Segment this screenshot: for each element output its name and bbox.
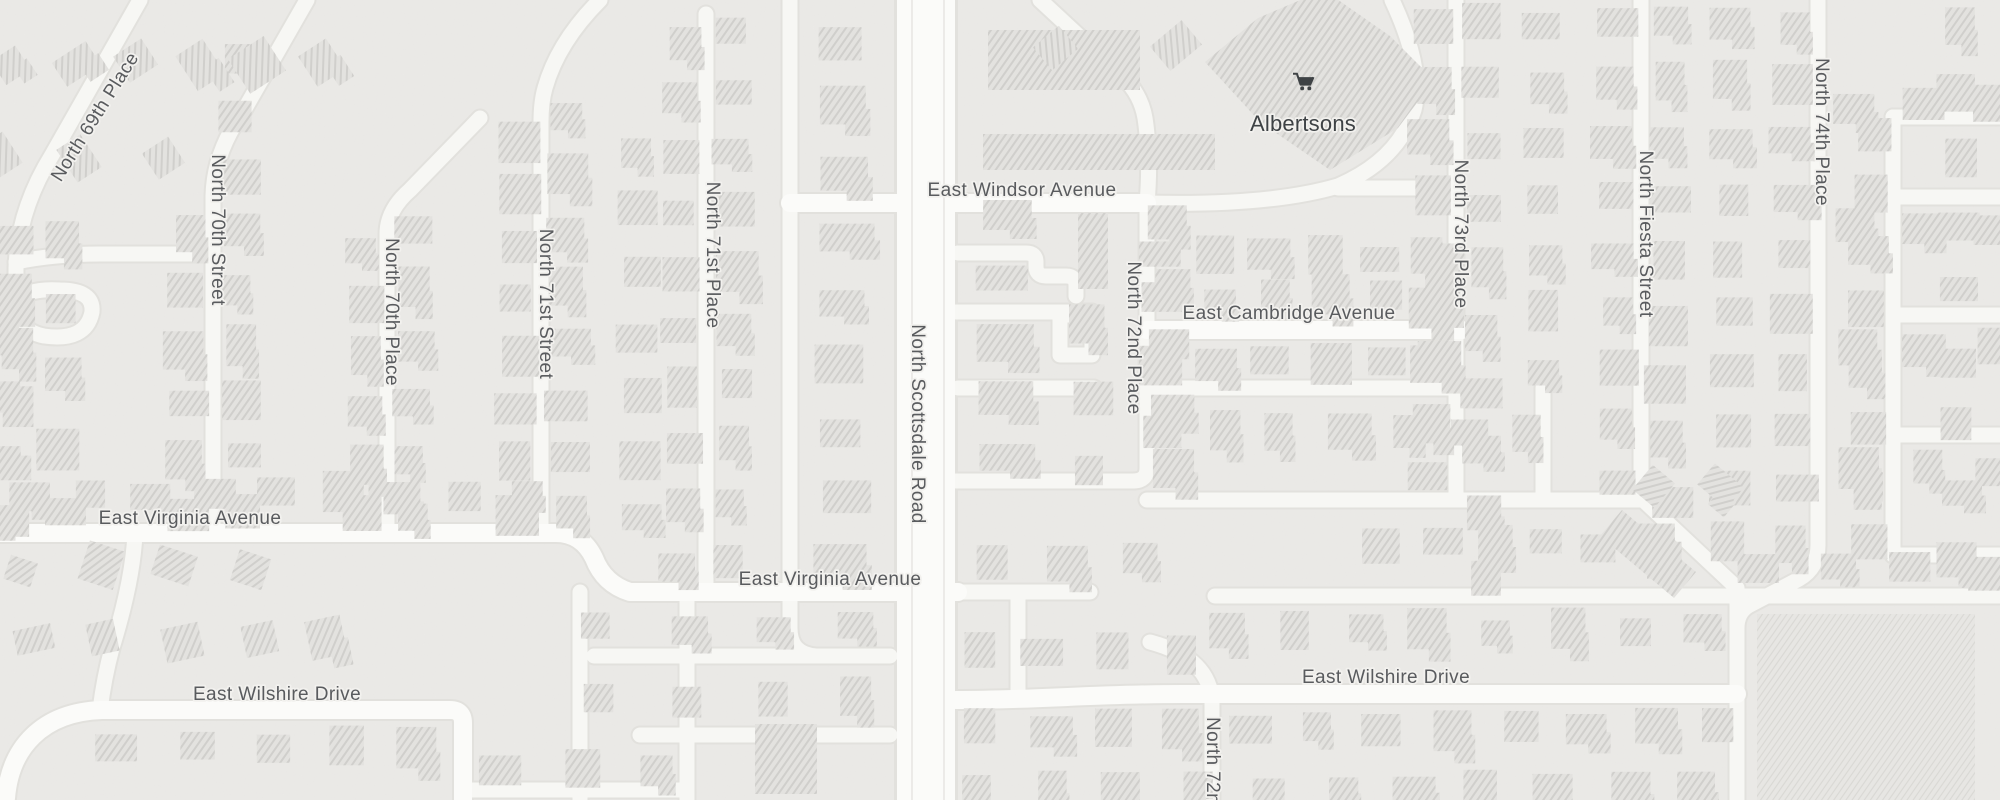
street-label: East Windsor Avenue <box>928 180 1117 201</box>
building-wing <box>1792 548 1809 574</box>
building <box>1581 534 1616 562</box>
building <box>1968 557 2000 591</box>
building <box>815 345 864 384</box>
building <box>758 682 787 717</box>
building <box>0 446 21 474</box>
building-wing <box>1010 460 1041 479</box>
building <box>823 480 871 513</box>
building <box>965 632 996 668</box>
building <box>1280 611 1308 650</box>
building <box>1973 85 2000 122</box>
building-wing <box>1229 634 1249 659</box>
building-wing <box>1549 92 1568 114</box>
building-wing <box>64 243 82 269</box>
building <box>1020 639 1063 666</box>
building-wing <box>570 178 592 206</box>
building <box>565 749 600 788</box>
building <box>983 134 1215 170</box>
building-wing <box>1436 89 1455 115</box>
building <box>660 318 696 343</box>
building <box>1423 528 1463 555</box>
building-wing <box>367 414 386 435</box>
building <box>502 336 539 377</box>
street-label: North 70th Street <box>207 154 228 306</box>
building <box>584 684 614 712</box>
building <box>618 190 658 225</box>
building <box>257 735 290 763</box>
building <box>1776 475 1819 502</box>
street-label: East Cambridge Avenue <box>1183 303 1396 324</box>
building-wing <box>1860 351 1881 376</box>
building-wing <box>847 177 873 201</box>
building <box>169 391 209 416</box>
building-wing <box>739 276 762 305</box>
building-wing <box>1861 472 1883 501</box>
building <box>76 481 105 508</box>
building <box>1940 277 1978 301</box>
building <box>494 393 536 424</box>
building <box>1713 242 1742 278</box>
street-label: East Wilshire Drive <box>1302 667 1470 688</box>
building <box>1855 175 1888 213</box>
building <box>663 140 699 174</box>
building <box>1196 236 1234 274</box>
building <box>1408 462 1448 490</box>
building-wing <box>679 570 699 590</box>
building-wing <box>731 506 747 525</box>
building-wing <box>1617 427 1635 449</box>
building-wing <box>0 331 23 356</box>
building <box>1522 13 1560 39</box>
building <box>581 613 610 639</box>
building <box>1463 770 1496 800</box>
street-label: East Virginia Avenue <box>99 508 282 529</box>
building-wing <box>1613 146 1636 169</box>
building-wing <box>1797 32 1813 55</box>
building <box>1361 714 1400 746</box>
building-wing <box>17 298 35 327</box>
building <box>977 545 1008 580</box>
building <box>1451 420 1488 446</box>
building <box>1738 554 1779 583</box>
building <box>1527 185 1558 213</box>
building-wing <box>1857 229 1878 253</box>
building-wing <box>237 293 253 314</box>
building-wing <box>736 446 752 470</box>
building-wing <box>1668 443 1686 469</box>
building-wing <box>1867 373 1885 400</box>
building <box>329 726 364 766</box>
building <box>551 442 590 472</box>
building-wing <box>845 109 870 136</box>
building-wing <box>418 349 438 370</box>
building-wing <box>32 500 54 520</box>
building-wing <box>1668 146 1687 168</box>
building <box>1460 378 1502 408</box>
street-label: East Virginia Avenue <box>739 569 922 590</box>
building <box>502 231 537 263</box>
building-wing <box>1410 435 1426 458</box>
building-wing <box>1620 314 1637 334</box>
building-wing <box>1008 347 1039 373</box>
building-wing <box>1871 253 1893 273</box>
building <box>1462 3 1500 39</box>
building <box>0 226 33 255</box>
building <box>46 294 76 323</box>
building-wing <box>1961 30 1977 56</box>
building-wing <box>410 463 426 483</box>
building-wing <box>1926 354 1950 377</box>
building <box>1139 346 1182 386</box>
building-wing <box>1655 545 1679 570</box>
building <box>819 27 862 60</box>
building-wing <box>1429 633 1451 662</box>
map-canvas[interactable]: North 69th PlaceNorth 70th StreetNorth 7… <box>0 0 2000 800</box>
building <box>667 433 703 464</box>
building-wing <box>685 509 704 533</box>
building-wing <box>692 633 712 653</box>
building-wing <box>1704 631 1725 651</box>
street-label: North 72nd <box>1202 717 1223 800</box>
building-wing <box>681 101 700 123</box>
building-wing <box>1497 636 1513 654</box>
building-wing <box>732 154 752 172</box>
building-wing <box>568 290 587 317</box>
building-wing <box>1483 452 1504 471</box>
building <box>1653 241 1684 280</box>
building-wing <box>1673 24 1692 44</box>
street-label: North 73rd Place <box>1450 160 1471 309</box>
poi-label[interactable]: Albertsons <box>1250 111 1356 136</box>
building-wing <box>638 156 654 177</box>
building <box>820 419 860 447</box>
building <box>1167 636 1196 675</box>
building <box>1702 708 1733 742</box>
building-wing <box>1732 83 1751 110</box>
building-wing <box>658 774 676 796</box>
building <box>1523 128 1563 158</box>
building <box>976 266 1028 291</box>
building-wing <box>65 378 85 401</box>
building <box>194 479 236 509</box>
building <box>1360 247 1399 272</box>
building-wing <box>1698 792 1719 800</box>
building <box>1770 294 1813 334</box>
building-wing <box>1483 337 1501 362</box>
building <box>1710 354 1754 387</box>
building <box>1716 297 1752 325</box>
building <box>1415 175 1451 215</box>
street-label: North 70th Place <box>381 238 402 386</box>
building <box>616 325 658 353</box>
building-wing <box>644 520 666 538</box>
building <box>1778 240 1810 268</box>
building-wing <box>1614 259 1637 277</box>
building <box>755 724 817 794</box>
building-wing <box>1732 27 1754 49</box>
building <box>479 755 521 785</box>
building-wing <box>192 237 208 263</box>
building <box>95 734 137 761</box>
building-wing <box>1054 793 1070 800</box>
building <box>1528 290 1558 331</box>
building <box>1599 471 1635 495</box>
building <box>1253 779 1285 800</box>
building <box>1644 365 1686 403</box>
building-wing <box>1009 401 1039 425</box>
building <box>1368 347 1405 375</box>
building-wing <box>573 515 590 538</box>
building-wing <box>1547 263 1565 284</box>
building-wing <box>568 119 585 138</box>
building <box>499 441 530 480</box>
large-block-building <box>1757 614 1975 800</box>
building <box>1903 88 1945 120</box>
building <box>167 273 203 308</box>
building-wing <box>418 752 440 781</box>
building <box>722 369 752 398</box>
building <box>499 174 541 214</box>
building <box>1978 328 2000 365</box>
building-wing <box>1545 375 1562 393</box>
building <box>964 708 995 743</box>
building <box>500 285 531 312</box>
building-wing <box>567 238 588 262</box>
building-wing <box>1617 86 1638 109</box>
building <box>1414 9 1454 44</box>
building-wing <box>1218 368 1241 391</box>
building <box>1775 414 1811 446</box>
building-wing <box>1528 437 1544 463</box>
building-wing <box>243 349 259 378</box>
building <box>349 286 384 323</box>
building <box>1848 290 1884 327</box>
building <box>1143 416 1181 448</box>
building <box>448 482 480 511</box>
building-wing <box>1182 733 1202 761</box>
street-label: North 71st Place <box>702 182 723 329</box>
building-wing <box>857 628 877 647</box>
building <box>1597 8 1638 37</box>
street-label: North 71st Street <box>535 229 556 380</box>
building <box>1078 213 1108 289</box>
building <box>1074 382 1114 416</box>
building-wing <box>1570 632 1589 661</box>
building <box>716 80 752 104</box>
building <box>1620 618 1651 646</box>
building <box>1095 709 1132 747</box>
building-wing <box>1176 472 1199 499</box>
building <box>1311 343 1352 385</box>
building <box>1141 282 1181 312</box>
building <box>1471 561 1501 596</box>
building <box>323 471 364 512</box>
building <box>1719 185 1748 216</box>
building <box>240 620 279 658</box>
building-wing <box>687 47 704 70</box>
building-wing <box>1840 569 1859 587</box>
building-wing <box>1659 729 1683 754</box>
avenue-road <box>956 694 1737 700</box>
building <box>1250 346 1288 374</box>
building <box>1945 139 1977 178</box>
minor-road <box>16 254 210 262</box>
building <box>1530 529 1562 553</box>
building <box>1229 716 1272 744</box>
building <box>1851 412 1886 444</box>
street-label: North Scottsdale Road <box>907 324 928 524</box>
building-wing <box>7 400 22 422</box>
building <box>1467 133 1500 159</box>
building-wing <box>1345 793 1361 800</box>
building-wing <box>1454 735 1475 764</box>
building <box>1851 524 1887 559</box>
building-wing <box>1069 567 1091 592</box>
building <box>1889 552 1930 582</box>
building-wing <box>1416 793 1440 800</box>
building-wing <box>1856 112 1879 133</box>
building-wing <box>1929 470 1945 494</box>
building <box>663 201 694 226</box>
street-map[interactable]: North 69th PlaceNorth 70th StreetNorth 7… <box>0 0 2000 800</box>
building-wing <box>185 354 207 381</box>
building-wing <box>1368 631 1387 650</box>
building <box>1461 67 1498 98</box>
building-wing <box>1497 547 1516 573</box>
building <box>1362 528 1400 563</box>
building <box>1139 242 1181 267</box>
building-wing <box>1280 436 1295 462</box>
building <box>667 366 697 407</box>
building <box>222 380 261 420</box>
building <box>544 391 588 422</box>
building <box>1716 414 1751 447</box>
building <box>1941 407 1972 440</box>
building <box>180 732 215 760</box>
building <box>663 257 700 291</box>
building-wing <box>1054 735 1077 757</box>
building <box>257 477 295 505</box>
building-wing <box>1271 257 1295 279</box>
building-wing <box>413 405 434 424</box>
building-wing <box>362 253 379 271</box>
building <box>1974 215 2000 245</box>
building-wing <box>1733 147 1757 168</box>
building <box>1308 235 1342 274</box>
building <box>1772 64 1813 105</box>
building-wing <box>416 291 433 319</box>
building-wing <box>404 501 424 524</box>
building <box>1096 632 1128 669</box>
building <box>1975 458 2000 486</box>
street-label: East Wilshire Drive <box>193 684 361 705</box>
building <box>36 429 79 471</box>
building-wing <box>571 345 595 364</box>
street-label: North Fiesta Street <box>1635 150 1656 317</box>
building-wing <box>775 632 794 649</box>
building-wing <box>736 333 755 356</box>
building <box>1599 182 1633 209</box>
building <box>1779 354 1807 391</box>
building-wing <box>1489 271 1506 299</box>
building <box>624 257 661 287</box>
building-wing <box>1318 730 1333 750</box>
building <box>624 378 662 413</box>
building-wing <box>19 353 36 382</box>
street-label: North 72nd Place <box>1123 261 1144 414</box>
building-wing <box>1352 435 1376 460</box>
street-label: North 74th Place <box>1811 58 1832 206</box>
building-wing <box>857 700 874 728</box>
building-wing <box>1227 434 1244 462</box>
building <box>619 441 660 480</box>
building <box>1600 350 1639 386</box>
building-wing <box>1010 218 1037 239</box>
building <box>218 101 251 133</box>
building <box>1075 456 1103 485</box>
building <box>0 506 16 541</box>
building <box>962 775 991 800</box>
building-wing <box>844 306 869 324</box>
building <box>672 687 701 718</box>
building <box>1467 195 1501 222</box>
building-wing <box>1964 496 1986 514</box>
building-wing <box>1088 328 1107 355</box>
building <box>1533 774 1573 800</box>
building <box>1504 711 1538 742</box>
building <box>1101 772 1140 800</box>
building <box>499 122 541 163</box>
building-wing <box>1633 794 1654 800</box>
building-wing <box>529 496 546 513</box>
building-wing <box>850 240 880 259</box>
building-wing <box>244 233 264 256</box>
building <box>716 18 746 44</box>
building-wing <box>1442 365 1466 393</box>
building-wing <box>1672 85 1688 112</box>
building-wing <box>1924 232 1946 253</box>
building-wing <box>1142 561 1161 582</box>
building-wing <box>1588 732 1610 753</box>
building <box>228 443 261 467</box>
